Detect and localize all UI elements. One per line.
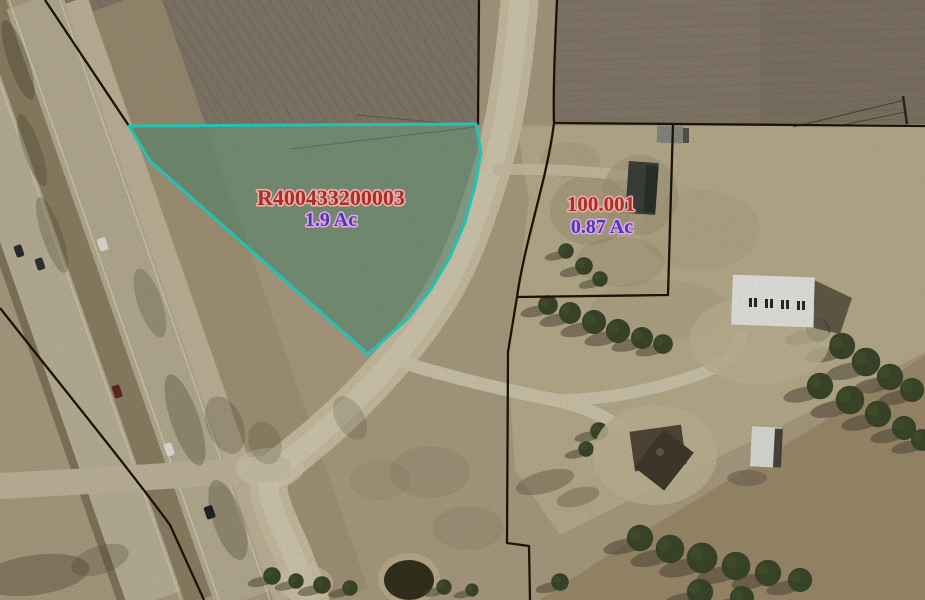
aerial-map-canvas[interactable]: R400433200003 1.9 Ac 100.001 0.87 Ac (0, 0, 925, 600)
highlighted-parcel-id-label: R400433200003 (257, 185, 405, 210)
photo-grain-overlay (0, 0, 925, 600)
aerial-parcel-map[interactable]: R400433200003 1.9 Ac 100.001 0.87 Ac (0, 0, 925, 600)
neighbor-parcel-area-label: 0.87 Ac (571, 216, 633, 238)
highlighted-parcel-area-label: 1.9 Ac (305, 209, 357, 231)
neighbor-parcel-id-label: 100.001 (567, 192, 635, 216)
